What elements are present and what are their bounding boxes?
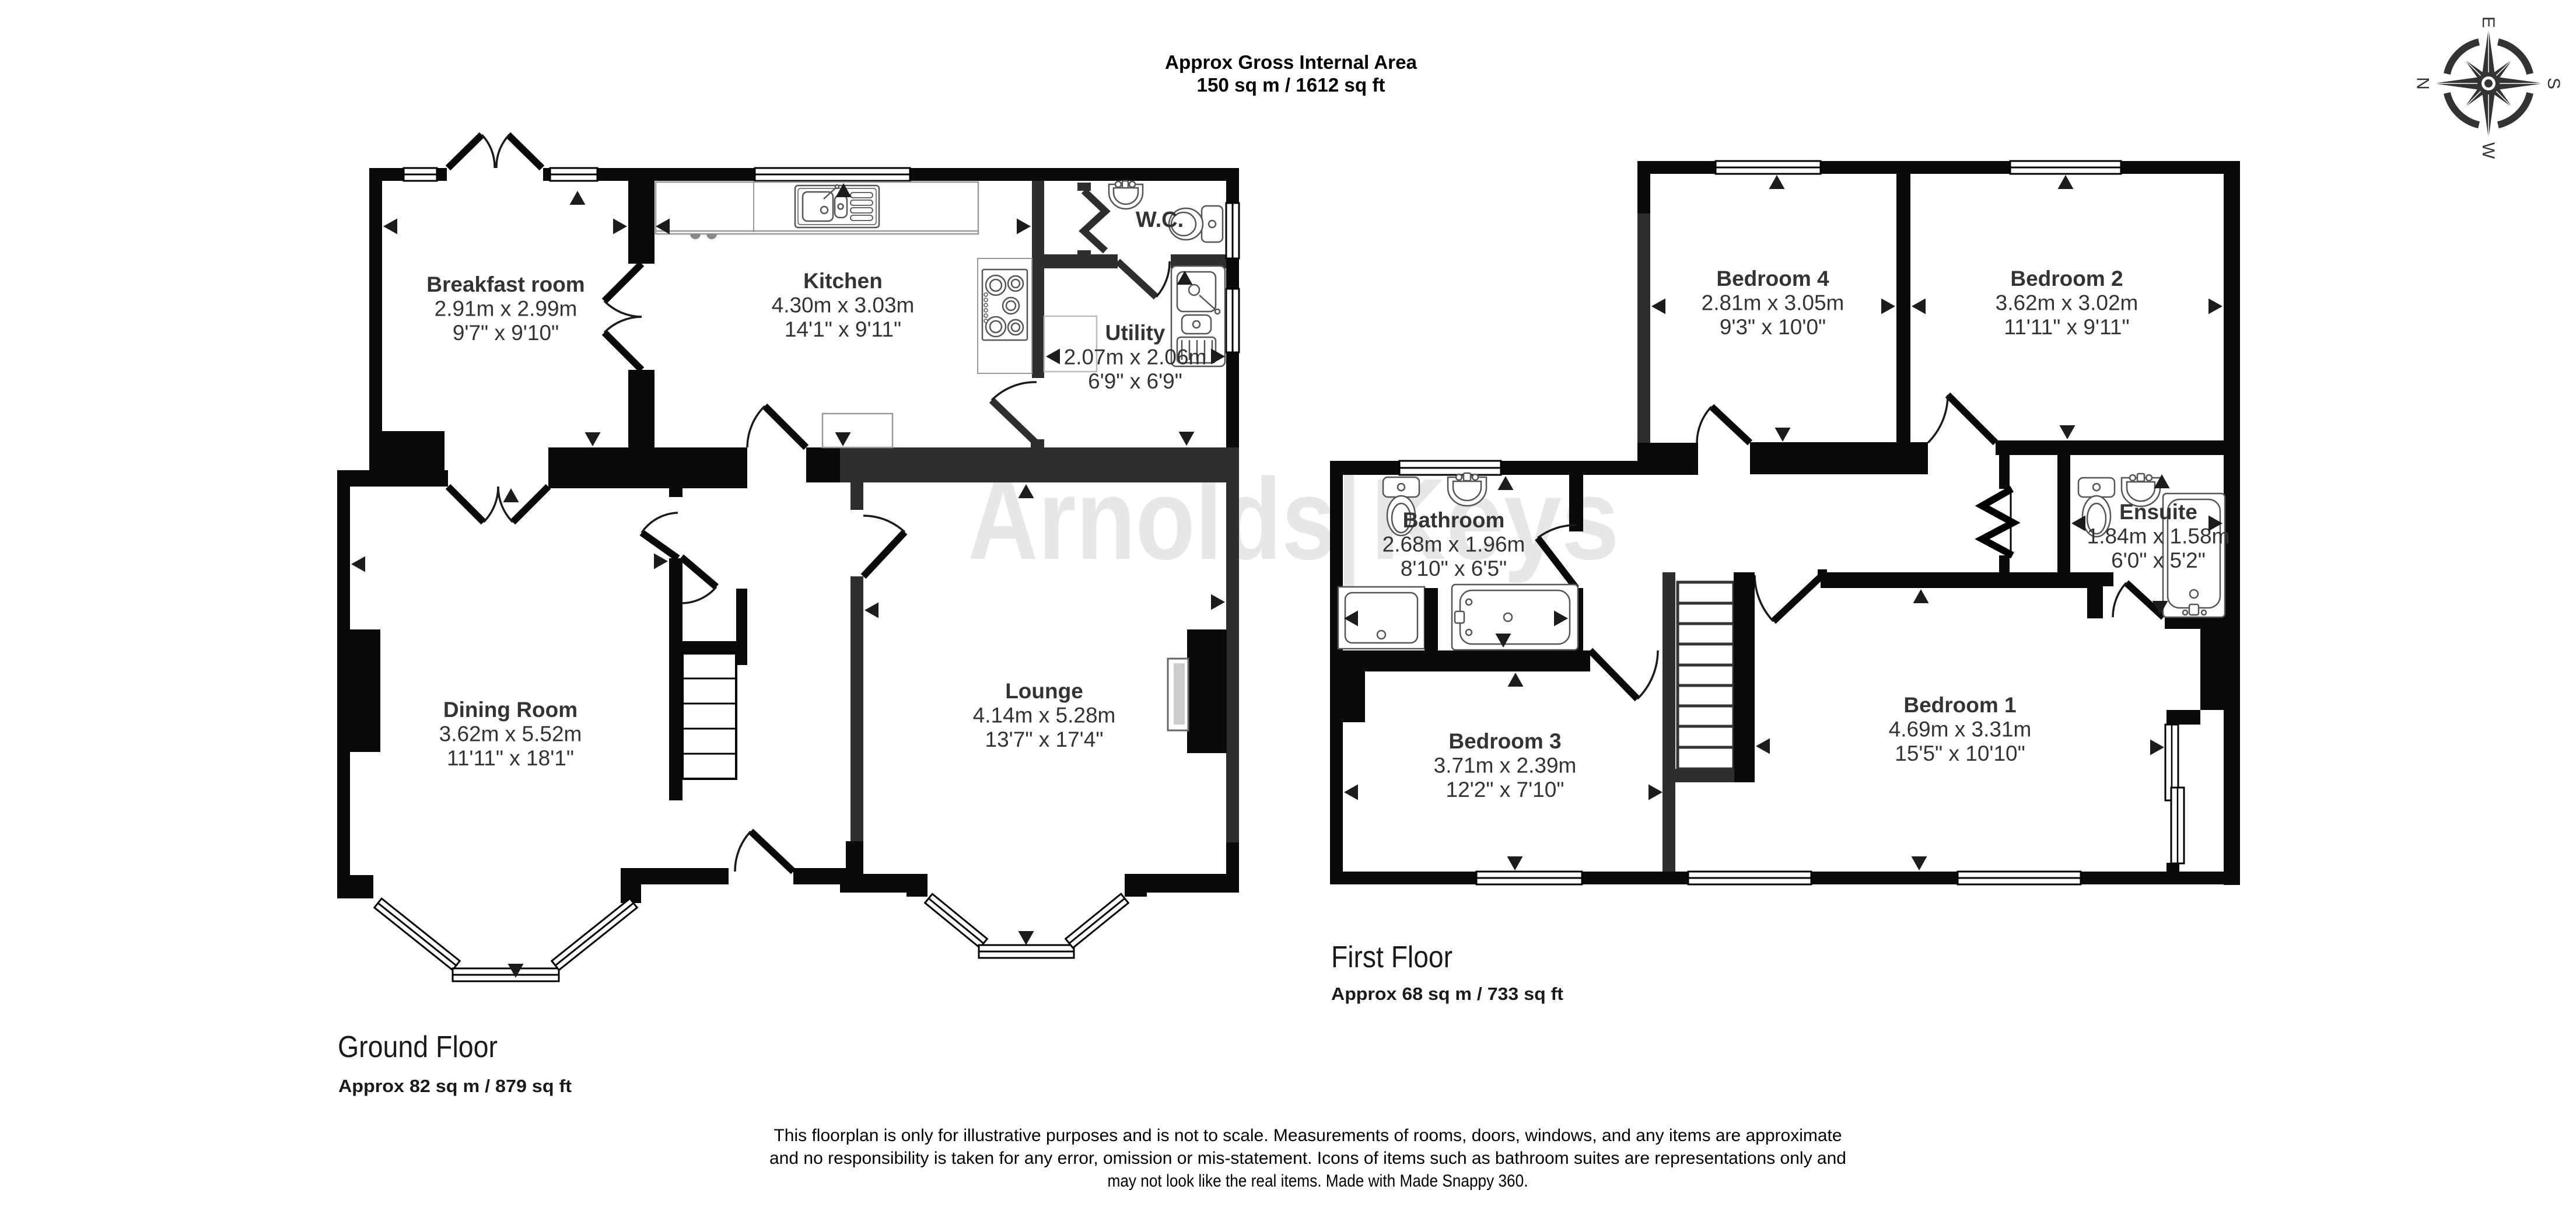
svg-text:4.30m x 3.03m: 4.30m x 3.03m <box>772 293 915 317</box>
svg-text:150 sq m / 1612 sq ft: 150 sq m / 1612 sq ft <box>1197 74 1385 96</box>
svg-text:This floorplan is only for ill: This floorplan is only for illustrative … <box>774 1126 1842 1145</box>
svg-text:W.C.: W.C. <box>1136 208 1184 232</box>
svg-text:9'7" x 9'10": 9'7" x 9'10" <box>453 321 559 345</box>
svg-text:Bathroom: Bathroom <box>1403 508 1505 532</box>
svg-text:2.68m x 1.96m: 2.68m x 1.96m <box>1382 533 1525 557</box>
svg-text:13'7" x 17'4": 13'7" x 17'4" <box>985 727 1104 751</box>
svg-text:8'10" x 6'5": 8'10" x 6'5" <box>1401 557 1507 580</box>
svg-text:Ensuite: Ensuite <box>2119 500 2197 524</box>
svg-text:Approx 82 sq m / 879 sq ft: Approx 82 sq m / 879 sq ft <box>338 1076 572 1096</box>
svg-text:Approx Gross Internal Area: Approx Gross Internal Area <box>1165 51 1417 73</box>
svg-text:11'11" x 18'1": 11'11" x 18'1" <box>447 746 574 770</box>
svg-text:12'2" x 7'10": 12'2" x 7'10" <box>1446 778 1564 802</box>
svg-text:First Floor: First Floor <box>1331 940 1452 974</box>
svg-text:3.62m x 3.02m: 3.62m x 3.02m <box>1996 291 2138 315</box>
svg-text:Bedroom 1: Bedroom 1 <box>1903 693 2016 717</box>
svg-text:6'0" x 5'2": 6'0" x 5'2" <box>2111 548 2206 572</box>
svg-text:N: N <box>2414 77 2433 90</box>
svg-text:Kitchen: Kitchen <box>803 269 883 293</box>
svg-text:Ground Floor: Ground Floor <box>338 1030 498 1064</box>
svg-text:15'5" x 10'10": 15'5" x 10'10" <box>1895 741 2025 765</box>
svg-text:3.71m x 2.39m: 3.71m x 2.39m <box>1434 754 1577 778</box>
svg-text:E: E <box>2479 16 2498 28</box>
svg-text:3.62m x 5.52m: 3.62m x 5.52m <box>439 722 582 746</box>
svg-text:2.07m x 2.06m: 2.07m x 2.06m <box>1064 345 1207 369</box>
svg-text:Dining Room: Dining Room <box>443 698 577 722</box>
svg-text:Bedroom 2: Bedroom 2 <box>2010 267 2123 291</box>
svg-text:14'1" x 9'11": 14'1" x 9'11" <box>785 317 901 341</box>
svg-text:and no responsibility is taken: and no responsibility is taken for any e… <box>769 1149 1846 1168</box>
svg-text:Lounge: Lounge <box>1005 679 1083 703</box>
svg-text:11'11" x 9'11": 11'11" x 9'11" <box>2004 315 2129 339</box>
svg-text:Bedroom 4: Bedroom 4 <box>1716 267 1829 291</box>
svg-text:1.84m x 1.58m: 1.84m x 1.58m <box>2087 524 2230 548</box>
svg-text:Breakfast room: Breakfast room <box>426 272 584 296</box>
svg-text:2.81m x 3.05m: 2.81m x 3.05m <box>1702 291 1845 315</box>
svg-text:Utility: Utility <box>1105 321 1165 345</box>
svg-text:W: W <box>2479 142 2498 159</box>
svg-text:4.69m x 3.31m: 4.69m x 3.31m <box>1889 718 2032 741</box>
svg-text:6'9" x 6'9": 6'9" x 6'9" <box>1088 369 1182 393</box>
svg-text:Bedroom 3: Bedroom 3 <box>1448 729 1561 753</box>
svg-text:Approx 68 sq m / 733 sq ft: Approx 68 sq m / 733 sq ft <box>1331 984 1563 1004</box>
svg-text:may not look like the real ite: may not look like the real items. Made w… <box>1108 1171 1528 1191</box>
svg-text:2.91m x 2.99m: 2.91m x 2.99m <box>435 297 577 321</box>
svg-text:4.14m x 5.28m: 4.14m x 5.28m <box>973 704 1116 727</box>
svg-text:S: S <box>2544 78 2563 89</box>
svg-text:9'3" x 10'0": 9'3" x 10'0" <box>1720 315 1826 339</box>
